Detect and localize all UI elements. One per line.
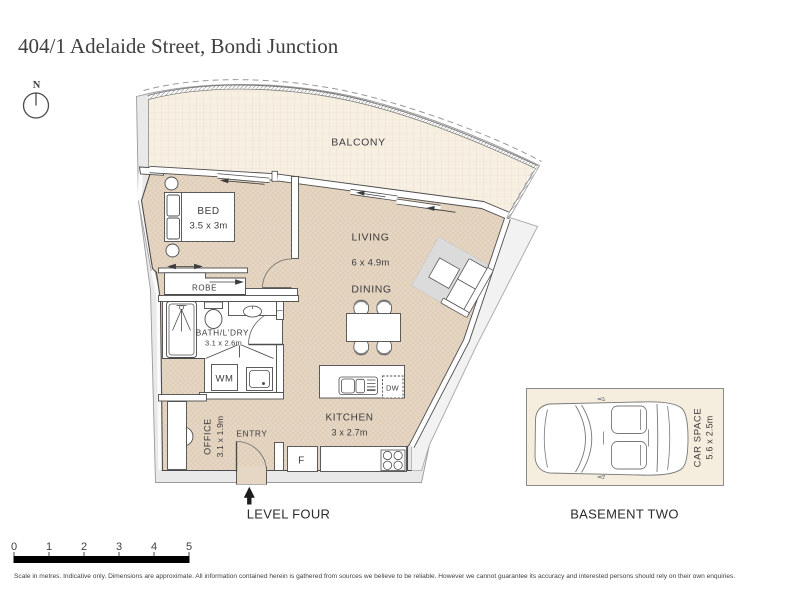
svg-text:ENTRY: ENTRY — [236, 429, 267, 439]
svg-text:5: 5 — [186, 541, 192, 553]
svg-text:F: F — [298, 456, 305, 467]
svg-text:N: N — [33, 80, 41, 91]
svg-text:Scale in metres. Indicative on: Scale in metres. Indicative only. Dimens… — [14, 573, 735, 580]
svg-text:DW: DW — [386, 384, 400, 393]
svg-text:BATH/L'DRY: BATH/L'DRY — [196, 328, 249, 338]
svg-text:CAR SPACE: CAR SPACE — [693, 408, 704, 468]
svg-text:3 x 2.7m: 3 x 2.7m — [331, 428, 367, 438]
svg-text:DINING: DINING — [351, 284, 391, 296]
svg-text:LEVEL FOUR: LEVEL FOUR — [247, 507, 330, 522]
svg-text:6 x 4.9m: 6 x 4.9m — [351, 258, 389, 269]
svg-text:0: 0 — [11, 541, 17, 553]
svg-text:1: 1 — [46, 541, 52, 553]
svg-text:404/1 Adelaide Street, Bondi J: 404/1 Adelaide Street, Bondi Junction — [18, 34, 339, 58]
svg-text:WM: WM — [215, 374, 233, 385]
svg-text:5.6 x 2.5m: 5.6 x 2.5m — [705, 415, 715, 459]
svg-text:KITCHEN: KITCHEN — [325, 413, 373, 424]
svg-text:OFFICE: OFFICE — [203, 418, 213, 455]
svg-text:2: 2 — [81, 541, 87, 553]
svg-text:LIVING: LIVING — [351, 232, 389, 244]
svg-text:3: 3 — [116, 541, 122, 553]
svg-text:4: 4 — [151, 541, 157, 553]
svg-text:BED: BED — [197, 206, 219, 217]
svg-text:3.1 x 1.9m: 3.1 x 1.9m — [215, 416, 225, 458]
svg-text:3.5 x 3m: 3.5 x 3m — [189, 221, 227, 232]
svg-text:3.1 x 2.6m: 3.1 x 2.6m — [205, 339, 242, 348]
svg-text:BASEMENT TWO: BASEMENT TWO — [570, 507, 679, 522]
svg-text:ROBE: ROBE — [192, 284, 217, 293]
svg-text:BALCONY: BALCONY — [331, 137, 385, 149]
